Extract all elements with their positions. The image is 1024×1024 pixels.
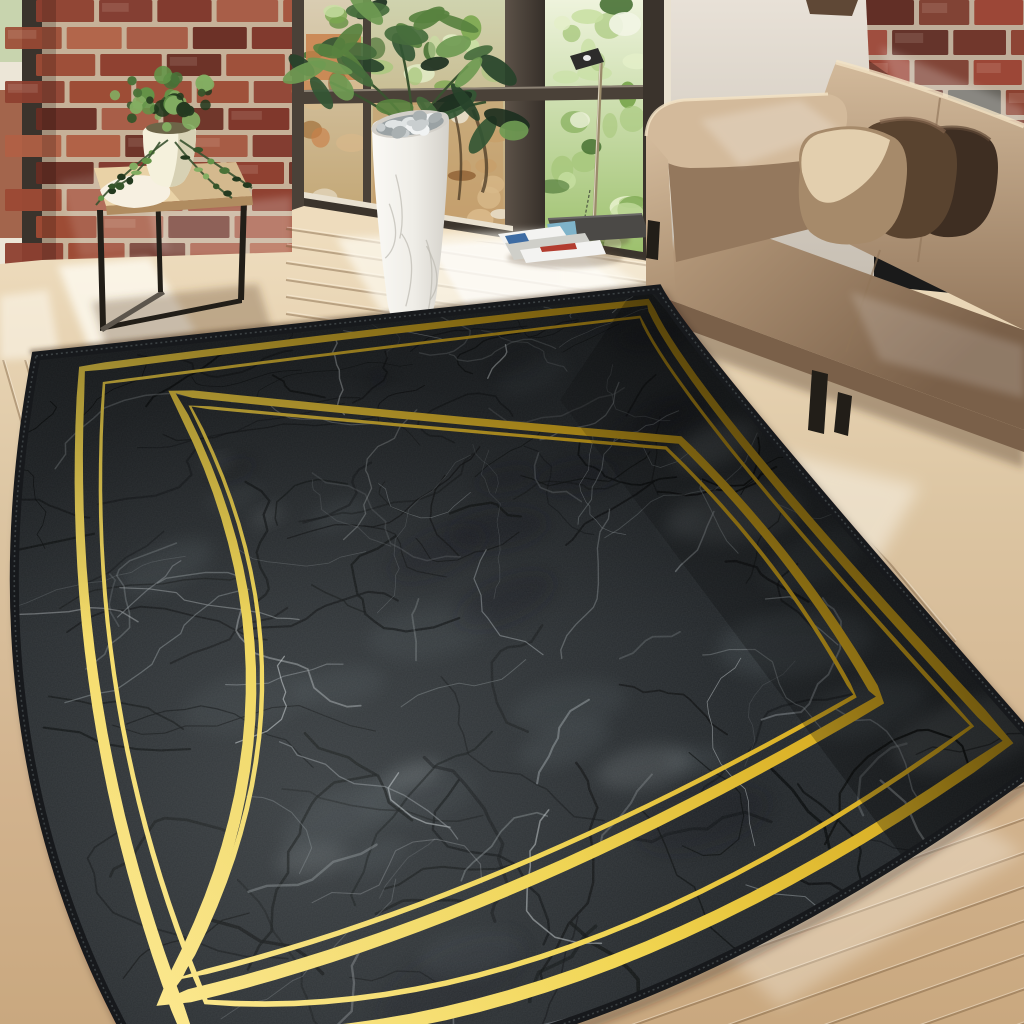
pillow-top-sliver	[806, 0, 858, 16]
foliage-blob	[620, 106, 645, 132]
sky-gap	[570, 112, 590, 128]
vine-leaf	[213, 184, 219, 190]
vine-leaf	[98, 195, 104, 201]
vine-leaf	[232, 177, 241, 182]
brick-texture	[1009, 93, 1024, 103]
window-mullion	[292, 0, 304, 212]
foliage-blob	[162, 122, 172, 132]
brick	[70, 81, 132, 103]
brick-texture	[895, 33, 923, 43]
foliage-blob	[323, 5, 344, 18]
foliage-blob	[477, 187, 500, 209]
window-mullion-thin	[363, 0, 371, 208]
vine-leaf	[115, 182, 124, 190]
brick	[66, 135, 120, 157]
foliage-blob	[553, 71, 579, 84]
vine-leaf	[219, 167, 229, 174]
foliage-blob	[336, 134, 367, 152]
foliage-blob	[602, 113, 617, 138]
vine-leaf	[203, 173, 209, 179]
brick-texture	[170, 57, 197, 66]
foliage-blob	[154, 66, 172, 84]
brick	[217, 0, 279, 22]
brick-texture	[8, 84, 38, 93]
vine-leaf	[109, 184, 116, 189]
vine-leaf	[131, 170, 142, 174]
brick-edge-shade	[42, 0, 56, 260]
brick-texture	[922, 3, 947, 13]
foliage-blob	[177, 93, 184, 100]
foliage-blob	[133, 88, 142, 97]
foliage-blob	[202, 78, 214, 90]
brick	[974, 0, 1023, 25]
foliage-blob	[198, 89, 206, 97]
living-room-photo	[0, 0, 1024, 1024]
vine-leaf	[142, 158, 152, 164]
foliage-blob	[200, 100, 211, 111]
vine-leaf	[117, 174, 126, 181]
brick	[1011, 30, 1024, 55]
foliage-blob	[184, 105, 194, 115]
vine-leaf	[194, 167, 203, 172]
foliage-blob	[311, 128, 329, 148]
vine-leaf	[193, 147, 203, 152]
foliage-blob	[571, 9, 603, 24]
foliage-blob	[127, 76, 136, 85]
foliage-blob	[554, 16, 570, 30]
brick-texture	[977, 63, 1001, 73]
vine-leaf	[243, 182, 252, 188]
vine-leaf	[207, 158, 214, 164]
brick	[157, 0, 211, 22]
scene-canvas	[0, 0, 1024, 1024]
foliage-blob	[146, 96, 153, 103]
brick	[193, 27, 247, 49]
vine-leaf	[223, 190, 232, 196]
foliage-blob	[408, 67, 423, 85]
brick	[226, 54, 285, 76]
brick	[100, 54, 162, 76]
brick	[953, 30, 1006, 55]
vine-leaf	[180, 155, 190, 160]
brick	[860, 0, 914, 25]
sky-gap	[609, 12, 641, 36]
lamp-bulb-glint	[583, 55, 591, 61]
sofa-leg	[646, 220, 660, 260]
brick-texture	[8, 30, 36, 39]
foliage-blob	[127, 113, 137, 123]
brick-texture	[231, 111, 261, 120]
brick	[67, 27, 122, 49]
vine-leaf	[129, 162, 138, 170]
pillow-beige	[799, 126, 907, 244]
brick	[127, 27, 188, 49]
foliage-blob	[130, 101, 143, 114]
foliage-blob	[171, 72, 183, 84]
vine-leaf	[126, 177, 133, 185]
foliage-blob	[110, 90, 120, 100]
brick-texture	[102, 3, 129, 12]
